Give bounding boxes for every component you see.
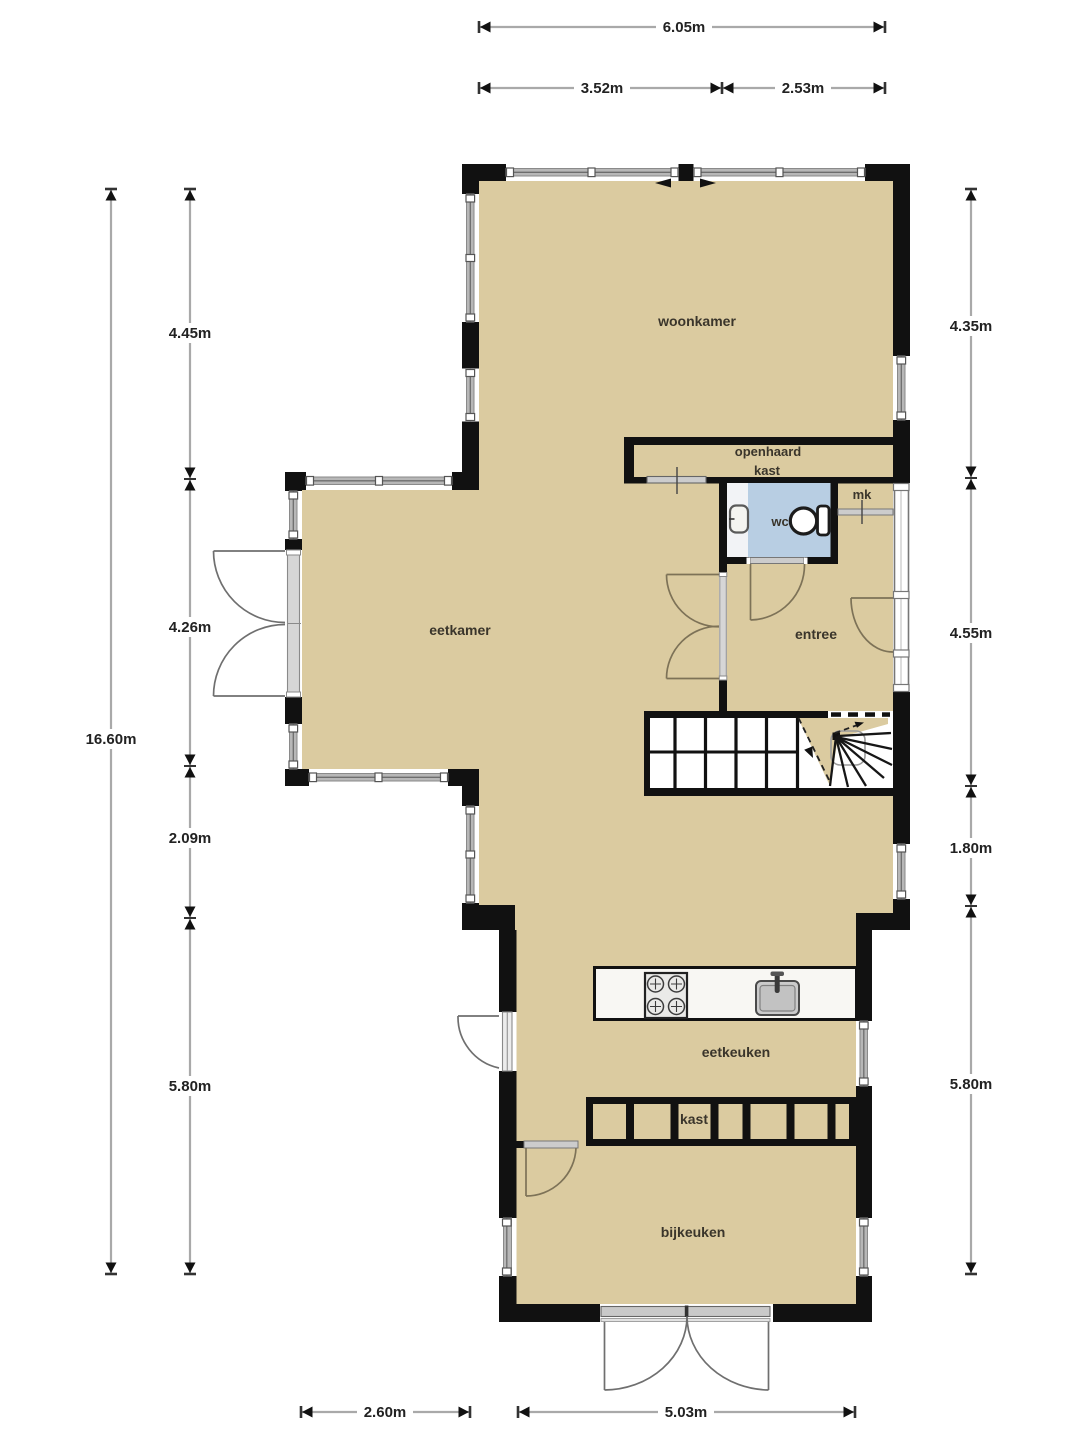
svg-text:woonkamer: woonkamer <box>657 313 736 329</box>
svg-text:4.45m: 4.45m <box>169 325 212 342</box>
svg-text:5.80m: 5.80m <box>169 1078 212 1095</box>
svg-text:2.09m: 2.09m <box>169 830 212 847</box>
svg-text:eetkamer: eetkamer <box>429 622 491 638</box>
svg-text:4.26m: 4.26m <box>169 619 212 636</box>
svg-text:2.60m: 2.60m <box>364 1404 407 1421</box>
svg-text:6.05m: 6.05m <box>663 19 706 36</box>
svg-text:4.55m: 4.55m <box>950 625 993 642</box>
svg-text:entree: entree <box>795 626 837 642</box>
svg-text:eetkeuken: eetkeuken <box>702 1044 770 1060</box>
svg-text:4.35m: 4.35m <box>950 318 993 335</box>
svg-text:1.80m: 1.80m <box>950 840 993 857</box>
svg-text:kast: kast <box>680 1111 708 1127</box>
svg-text:kast: kast <box>754 463 781 478</box>
svg-text:openhaard: openhaard <box>735 444 802 459</box>
svg-text:3.52m: 3.52m <box>581 80 624 97</box>
svg-text:5.03m: 5.03m <box>665 1404 708 1421</box>
svg-text:2.53m: 2.53m <box>782 80 825 97</box>
svg-text:mk: mk <box>853 487 873 502</box>
svg-text:16.60m: 16.60m <box>86 731 137 748</box>
svg-text:bijkeuken: bijkeuken <box>661 1224 726 1240</box>
svg-text:wc: wc <box>770 514 788 529</box>
svg-text:5.80m: 5.80m <box>950 1076 993 1093</box>
